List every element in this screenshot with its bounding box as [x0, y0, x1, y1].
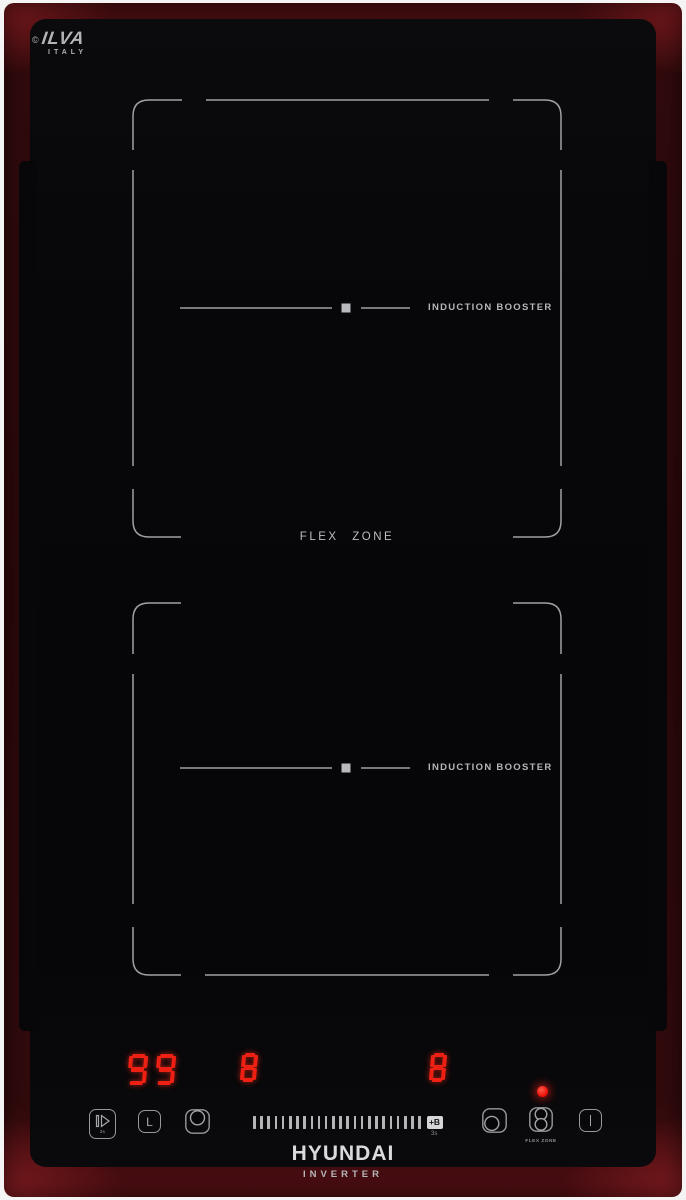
slider-tick — [418, 1116, 421, 1129]
zone-outline-overlay — [4, 3, 686, 1200]
seg7-digit — [429, 1053, 448, 1082]
boost-hold-hint: 3s — [431, 1131, 437, 1137]
seg7-digit — [240, 1053, 259, 1082]
flex-zone-button[interactable] — [529, 1107, 553, 1132]
induction-hob: © ILVA ITALY — [4, 3, 682, 1197]
zone-bottom-center-marker — [180, 764, 410, 773]
flex-zone-icon — [529, 1107, 553, 1132]
slider-tick — [318, 1116, 321, 1129]
slider-tick — [397, 1116, 400, 1129]
slider-tick — [339, 1116, 342, 1129]
slider-tick — [296, 1116, 299, 1129]
slider-tick — [346, 1116, 349, 1129]
slider-tick — [354, 1116, 357, 1129]
pause-button[interactable]: 3s — [89, 1109, 116, 1139]
zone-bottom-icon — [482, 1108, 507, 1133]
brand-subtitle: INVERTER — [4, 1169, 682, 1180]
slider-tick — [289, 1116, 292, 1129]
seg7-digit — [155, 1054, 177, 1085]
slider-tick — [275, 1116, 278, 1129]
zone-top-icon — [185, 1109, 210, 1134]
zone-top-center-marker — [180, 304, 410, 313]
zone-right-power-display — [430, 1053, 446, 1082]
slider-tick — [282, 1116, 285, 1129]
flex-zone-led — [537, 1086, 548, 1097]
power-button[interactable] — [579, 1109, 602, 1132]
pause-play-icon — [93, 1114, 112, 1128]
slider-tick — [311, 1116, 314, 1129]
slider-tick — [368, 1116, 371, 1129]
slider-tick — [375, 1116, 378, 1129]
slider-tick — [303, 1116, 306, 1129]
slider-tick — [267, 1116, 270, 1129]
brand-logo: HYUNDAI — [4, 1142, 682, 1166]
zone-bottom-select-button[interactable] — [482, 1108, 507, 1133]
timer-display — [128, 1054, 175, 1085]
slider-tick — [260, 1116, 263, 1129]
product-photo: © ILVA ITALY — [0, 0, 686, 1200]
lock-button[interactable]: L — [138, 1110, 161, 1133]
power-icon — [590, 1115, 592, 1126]
slider-tick — [361, 1116, 364, 1129]
zone-bottom-outline — [133, 603, 561, 975]
power-slider[interactable]: +B — [253, 1115, 443, 1129]
slider-tick — [404, 1116, 407, 1129]
induction-booster-label-top: INDUCTION BOOSTER — [428, 302, 553, 313]
pause-hold-hint: 3s — [100, 1129, 105, 1134]
flex-zone-label: FLEX ZONE — [133, 531, 561, 543]
slider-tick — [411, 1116, 414, 1129]
slider-tick — [325, 1116, 328, 1129]
slider-tick — [390, 1116, 393, 1129]
zone-left-power-display — [241, 1053, 257, 1082]
lock-icon: L — [146, 1116, 153, 1128]
induction-booster-label-bottom: INDUCTION BOOSTER — [428, 762, 553, 773]
zone-top-select-button[interactable] — [185, 1109, 210, 1134]
seg7-digit — [127, 1054, 149, 1085]
slider-ticks — [253, 1116, 426, 1129]
slider-tick — [382, 1116, 385, 1129]
boost-button[interactable]: +B — [427, 1116, 443, 1129]
slider-tick — [253, 1116, 256, 1129]
zone-top-outline — [133, 100, 561, 537]
slider-tick — [332, 1116, 335, 1129]
